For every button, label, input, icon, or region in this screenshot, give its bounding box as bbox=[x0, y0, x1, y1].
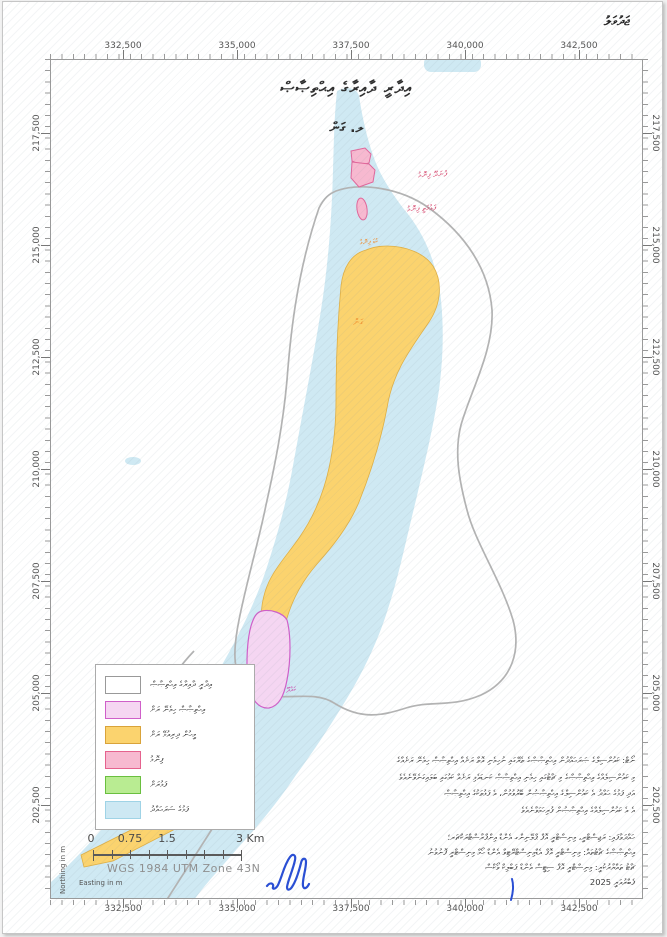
scale-bar-tick bbox=[241, 850, 242, 861]
legend-item: އިދާރީ ދާއިރާގެ އިޙްތިޞާޞް bbox=[105, 672, 245, 697]
signature-scribble bbox=[261, 840, 319, 898]
major-tick-top bbox=[465, 50, 466, 59]
island-label-kahdhoo: ކައްދޫ bbox=[286, 685, 297, 695]
scale-bar-tick bbox=[167, 850, 168, 859]
legend-item: އިޙްތިޞާޞް ހިމެނޭ ރަށް bbox=[105, 697, 245, 722]
credits-block: ހައްދަވާފައި: ރަޖިސްޓްރީ، މިނިސްޓްރީ އޮފ… bbox=[303, 830, 635, 890]
scale-bar-tick bbox=[186, 850, 187, 859]
note-line: އެ އެ ކައުންސިލެއްގެ އިޙްތިޞާޞުން ފުރިހަ… bbox=[291, 802, 635, 819]
map-title-line1: އިދާރީ ދާއިރާގެ އިޙްތިޞާޞް bbox=[50, 78, 643, 98]
major-tick-left bbox=[41, 245, 50, 246]
x-axis-unit-label: Easting in m bbox=[79, 879, 123, 887]
scale-bar-tick bbox=[93, 850, 94, 861]
major-tick-bottom bbox=[237, 899, 238, 908]
scale-bar-tick bbox=[130, 850, 131, 859]
major-tick-bottom bbox=[351, 899, 352, 908]
minor-ticks-right bbox=[643, 59, 648, 899]
annex-label: ޖަދުވަލު bbox=[548, 14, 630, 29]
major-tick-right bbox=[643, 581, 652, 582]
map-title-line2: ލ. ގަން bbox=[50, 120, 643, 136]
credit-line: ޗާޓު ތައްޔާރުކުރީ: މިނިސްޓްރީ އޮފް ސިޓީސ… bbox=[303, 860, 635, 875]
island-label-finolhu-mid: ފަޅުމަތީ ފިނޮޅު bbox=[407, 203, 436, 215]
note-line: މި ކައުންސިލެއްގެ އިޙްތިޞާޞްގެ މި ޗާޓުގަ… bbox=[291, 769, 635, 786]
scale-bar-tick bbox=[112, 850, 113, 859]
legend-item-label: އިޙްތިޞާޞް ހިމެނޭ ރަށް bbox=[150, 705, 205, 715]
minor-ticks-top bbox=[50, 54, 643, 59]
legend-item-label: ފިނޮޅު bbox=[150, 755, 163, 765]
major-tick-top bbox=[237, 50, 238, 59]
legend-box: އިދާރީ ދާއިރާގެ އިޙްތިޞާޞްއިޙްތިޞާޞް ހިމ… bbox=[95, 664, 255, 830]
major-tick-right bbox=[643, 805, 652, 806]
legend-item: މީހުން ދިރިއުޅޭ ރަށް bbox=[105, 722, 245, 747]
major-tick-right bbox=[643, 245, 652, 246]
legend-item-label: ފަޅުރަށް bbox=[150, 780, 167, 790]
scale-bar-number: 1.5 bbox=[158, 832, 176, 845]
legend-swatch bbox=[105, 726, 141, 744]
scanned-map-page: ޖަދުވަލު އިދާރީ bbox=[0, 0, 667, 937]
y-axis-unit-label: Northing in m bbox=[59, 832, 67, 894]
crs-label: WGS 1984 UTM Zone 43N bbox=[107, 862, 260, 875]
lagoon-patch-top bbox=[424, 60, 481, 72]
credit-line: އިޙްތިޞާޞްގެ ޗާޓުތައް: މިނިސްޓްރީ އޮފް އ… bbox=[303, 845, 635, 860]
major-tick-left bbox=[41, 357, 50, 358]
legend-swatch bbox=[105, 676, 141, 694]
legend-item-label: އިދާރީ ދާއިރާގެ އިޙްތިޞާޞް bbox=[150, 680, 212, 690]
major-tick-right bbox=[643, 693, 652, 694]
note-paragraph: ނޯޓް: ކައުންސިލްގެ ޞަރަޙައްދުން އިޙްތިޞާ… bbox=[291, 752, 635, 818]
major-tick-right bbox=[643, 133, 652, 134]
legend-swatch bbox=[105, 751, 141, 769]
island-label-finolhu-north: ފުނަދޫ ފިނޮޅު bbox=[418, 169, 448, 181]
paper-sheet: ޖަދުވަލު އިދާރީ bbox=[2, 1, 663, 934]
major-tick-left bbox=[41, 581, 50, 582]
major-tick-bottom bbox=[465, 899, 466, 908]
major-tick-top bbox=[123, 50, 124, 59]
note-line: ނޯޓް: ކައުންސިލްގެ ޞަރަޙައްދުން އިޙްތިޞާ… bbox=[291, 752, 635, 769]
major-tick-right bbox=[643, 357, 652, 358]
pen-mark bbox=[506, 878, 520, 902]
legend-item-label: ފަޅުގެ ސަރަޙައްދު bbox=[150, 805, 189, 815]
major-tick-left bbox=[41, 693, 50, 694]
note-line: އަދި ފަޅުގެ ޙައްދު އެ ކައުންސިލްގެ އިޙްތ… bbox=[291, 785, 635, 802]
legend-swatch bbox=[105, 776, 141, 794]
legend-swatch bbox=[105, 801, 141, 819]
map-date: ފެބްރުއަރީ 2025 bbox=[303, 875, 635, 890]
major-tick-left bbox=[41, 805, 50, 806]
major-tick-top bbox=[351, 50, 352, 59]
scale-bar-tick bbox=[204, 850, 205, 859]
major-tick-top bbox=[579, 50, 580, 59]
scale-bar-tick bbox=[149, 850, 150, 859]
major-tick-bottom bbox=[123, 899, 124, 908]
major-tick-left bbox=[41, 469, 50, 470]
legend-item: ފަޅުގެ ސަރަޙައްދު bbox=[105, 797, 245, 822]
legend-item: ފަޅުރަށް bbox=[105, 772, 245, 797]
legend-rows: އިދާރީ ދާއިރާގެ އިޙްތިޞާޞްއިޙްތިޞާޞް ހިމ… bbox=[105, 672, 245, 822]
minor-ticks-left bbox=[45, 59, 50, 899]
legend-swatch bbox=[105, 701, 141, 719]
scale-bar-number: 0 bbox=[88, 832, 95, 845]
major-tick-left bbox=[41, 133, 50, 134]
legend-item-label: މީހުން ދިރިއުޅޭ ރަށް bbox=[150, 730, 196, 740]
island-label-gan: ގަން bbox=[353, 318, 363, 328]
major-tick-bottom bbox=[579, 899, 580, 908]
major-tick-right bbox=[643, 469, 652, 470]
scale-bar-number: 0.75 bbox=[118, 832, 143, 845]
scale-bar-tick bbox=[223, 850, 224, 859]
legend-item: ފިނޮޅު bbox=[105, 747, 245, 772]
credit-line: ހައްދަވާފައި: ރަޖިސްޓްރީ، މިނިސްޓްރީ އޮފ… bbox=[303, 830, 635, 845]
lagoon-speck bbox=[125, 457, 141, 465]
